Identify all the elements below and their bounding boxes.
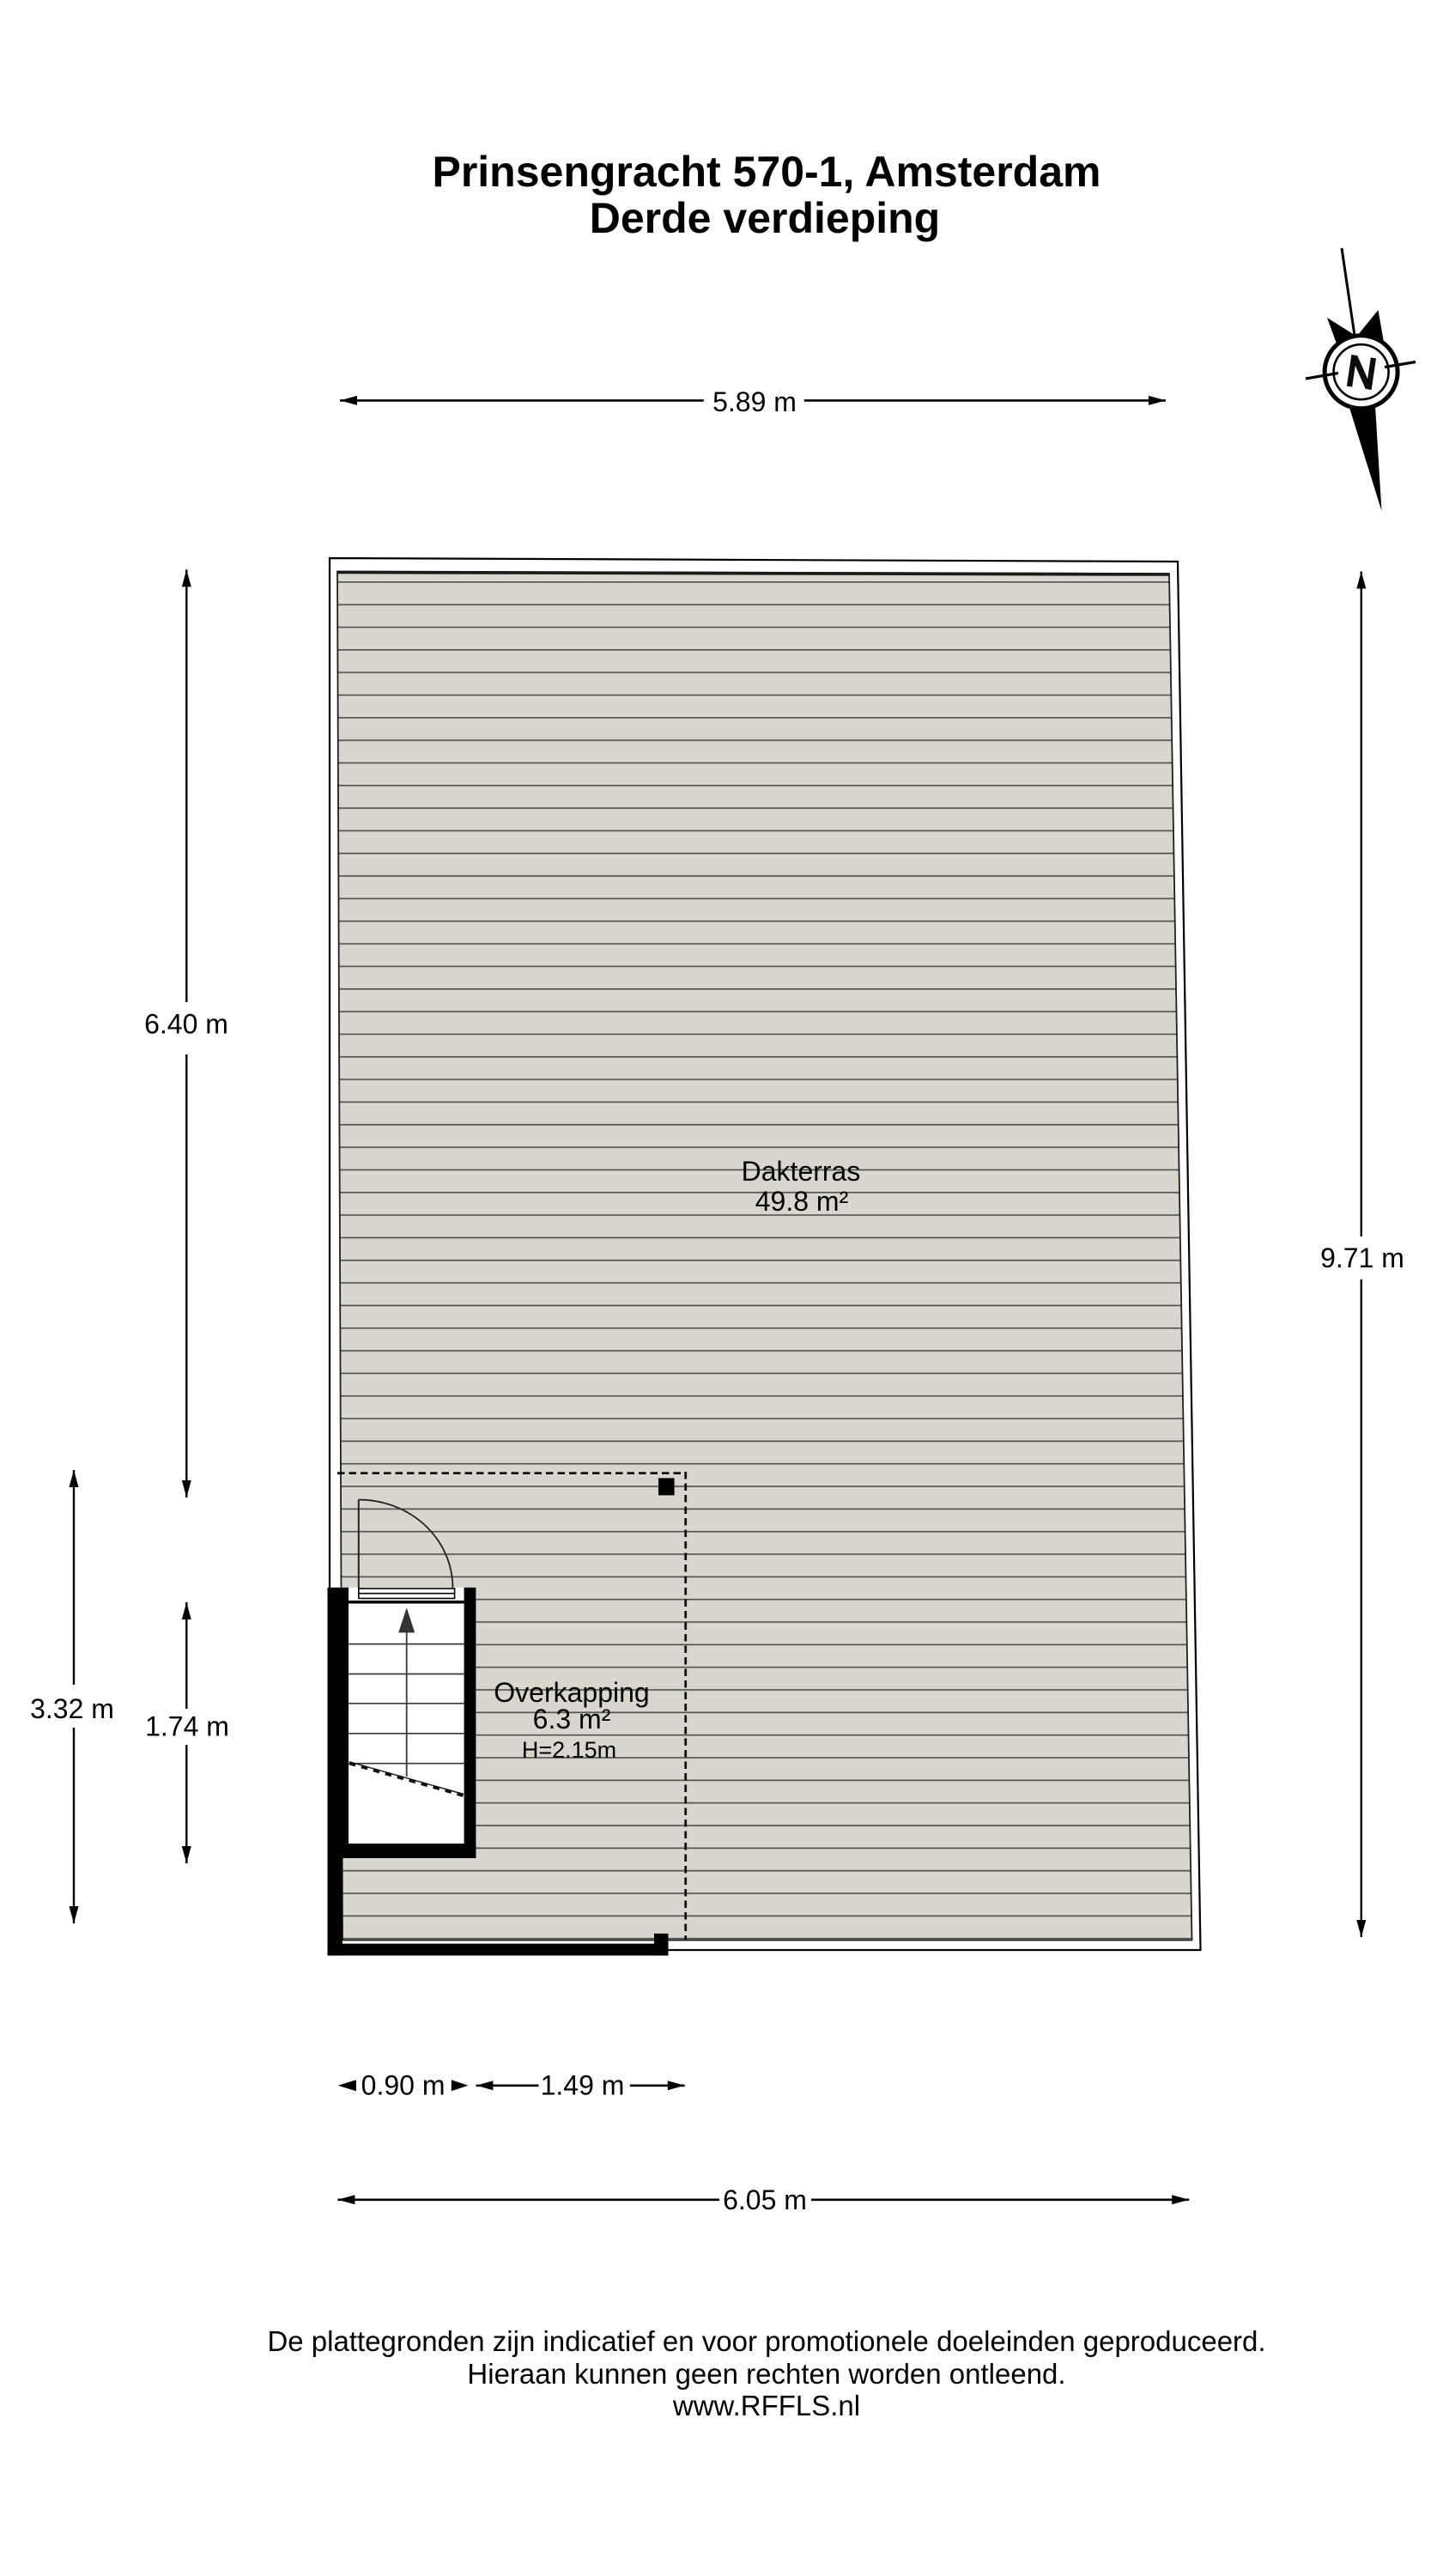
- svg-text:Dakterras: Dakterras: [742, 1156, 861, 1187]
- svg-text:5.89 m: 5.89 m: [712, 386, 797, 417]
- svg-text:3.32 m: 3.32 m: [30, 1693, 114, 1724]
- svg-text:6.40 m: 6.40 m: [144, 1009, 228, 1040]
- svg-text:www.RFFLS.nl: www.RFFLS.nl: [672, 2390, 860, 2421]
- svg-text:6.05 m: 6.05 m: [723, 2184, 807, 2215]
- svg-text:1.74 m: 1.74 m: [145, 1711, 229, 1742]
- svg-text:49.8 m²: 49.8 m²: [755, 1186, 849, 1217]
- svg-text:0.90 m: 0.90 m: [361, 2070, 446, 2101]
- svg-text:Derde verdieping: Derde verdieping: [590, 194, 940, 242]
- svg-text:9.71 m: 9.71 m: [1320, 1242, 1404, 1273]
- svg-text:H=2.15m: H=2.15m: [522, 1737, 616, 1763]
- svg-text:Hieraan kunnen geen rechten wo: Hieraan kunnen geen rechten worden ontle…: [467, 2358, 1065, 2390]
- svg-text:1.49 m: 1.49 m: [541, 2070, 625, 2101]
- svg-text:De plattegronden zijn indicati: De plattegronden zijn indicatief en voor…: [267, 2325, 1265, 2357]
- svg-text:6.3 m²: 6.3 m²: [533, 1704, 611, 1735]
- svg-text:Prinsengracht 570-1, Amsterdam: Prinsengracht 570-1, Amsterdam: [432, 148, 1100, 196]
